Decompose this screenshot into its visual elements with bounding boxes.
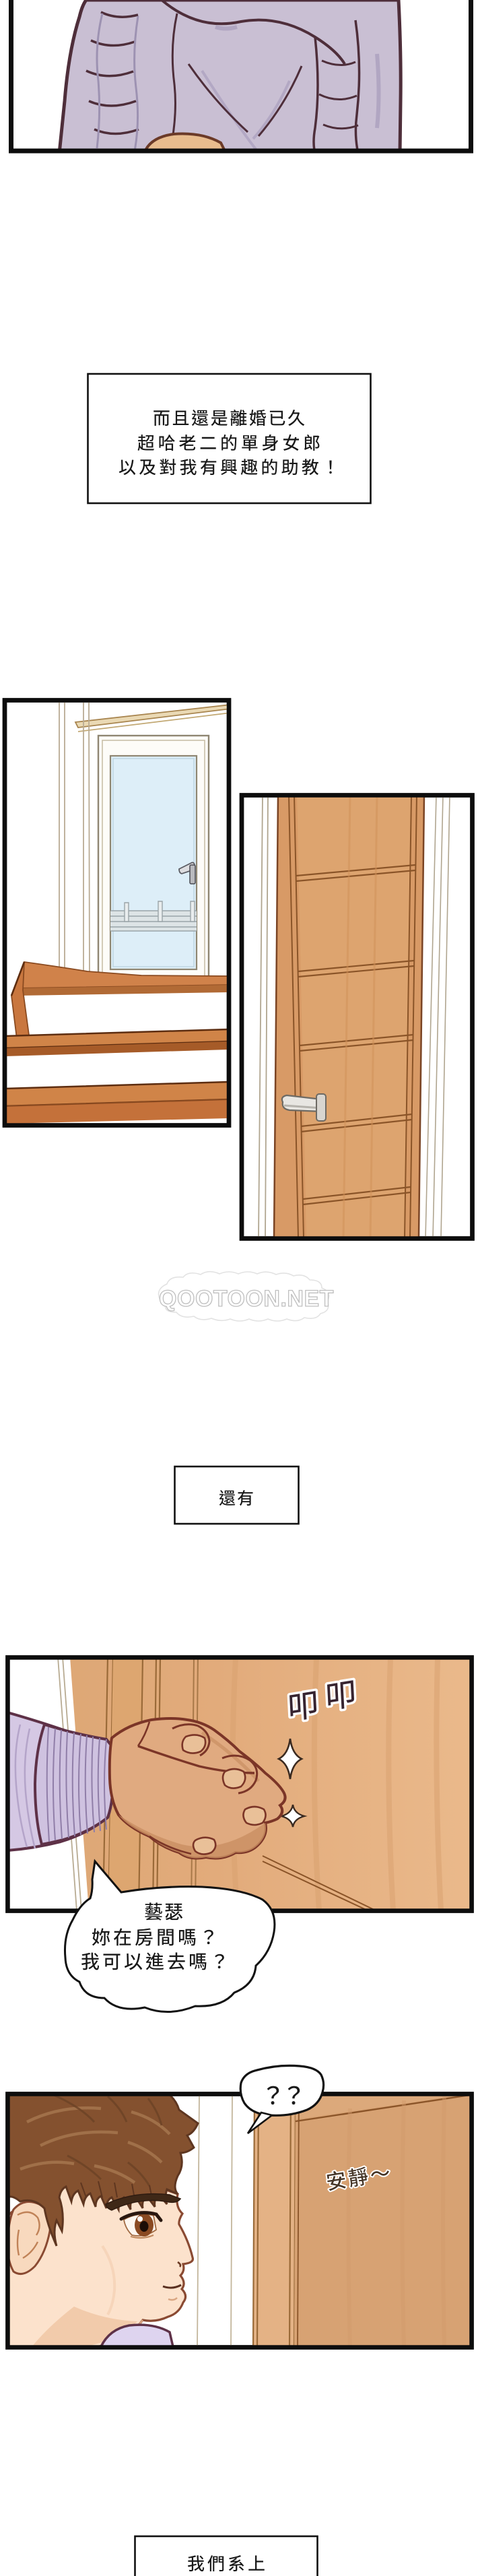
svg-text:QOOTOON.NET: QOOTOON.NET (159, 1286, 334, 1312)
